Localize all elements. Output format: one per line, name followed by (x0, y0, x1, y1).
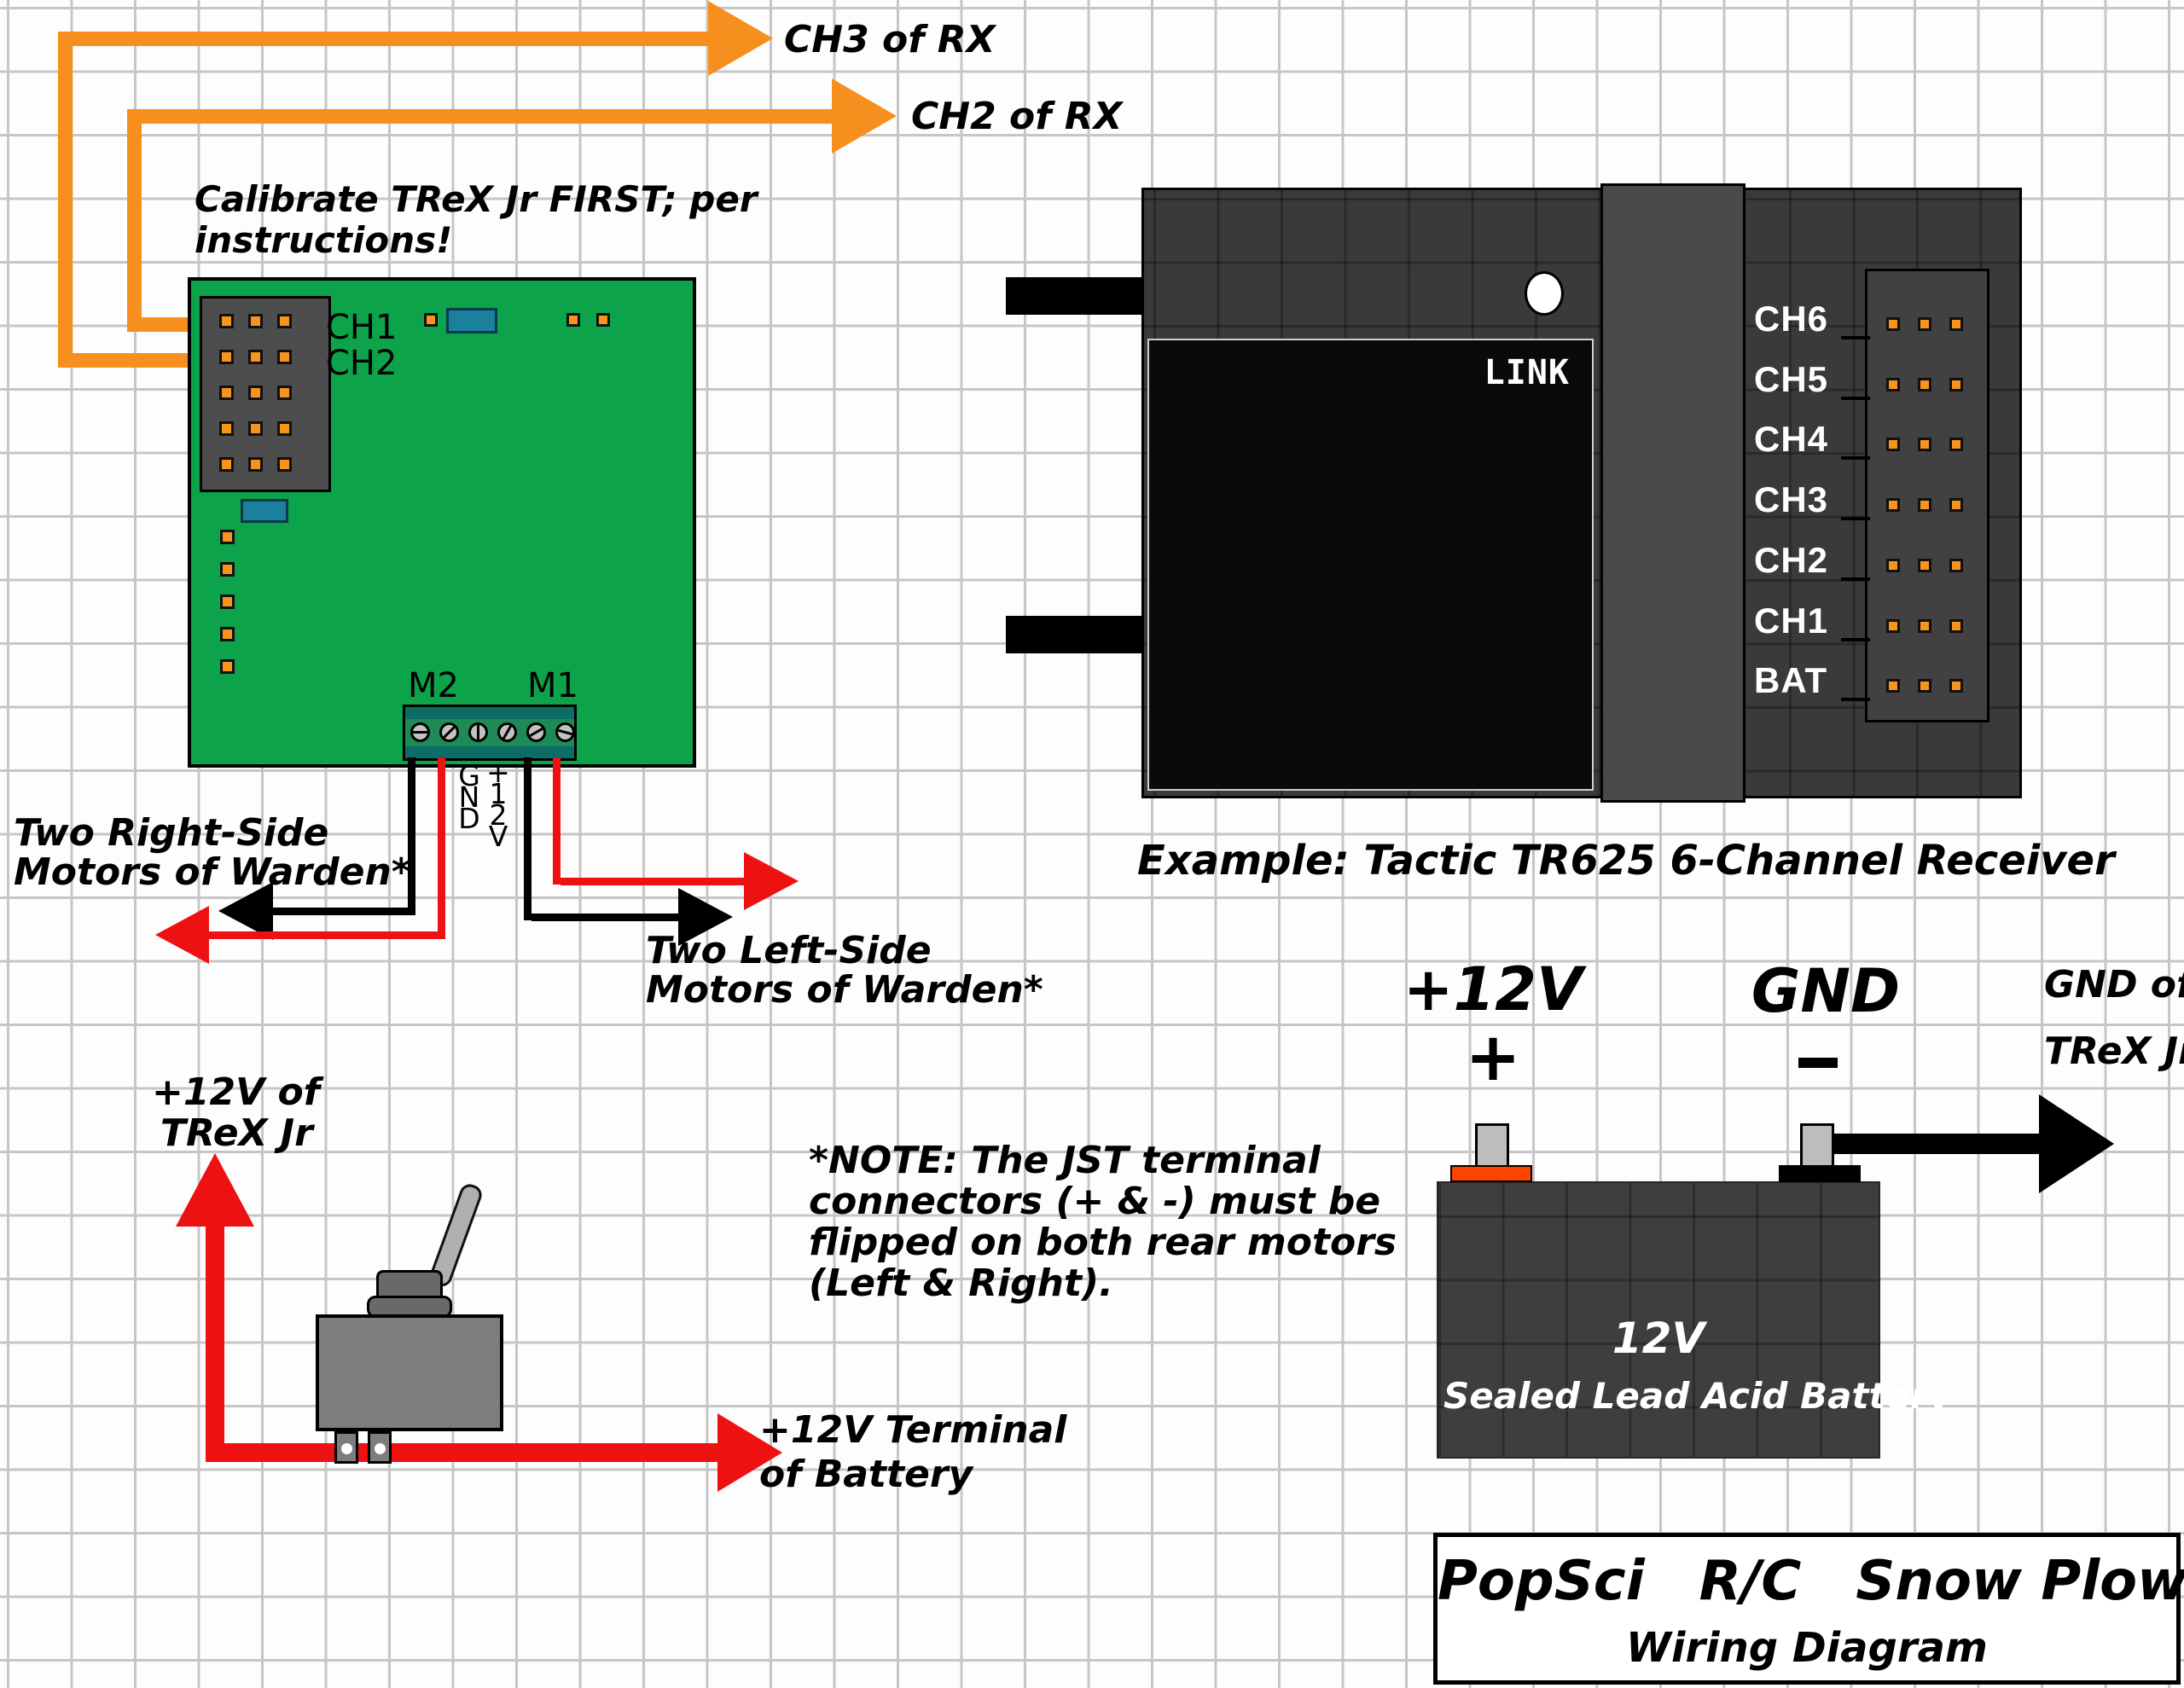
channel-step-line (1841, 577, 1870, 581)
m1-red-wire-v (553, 757, 561, 885)
receiver-channel-row: BAT (1754, 660, 2010, 708)
gnd-vertical-label: G N D (454, 765, 485, 829)
receiver-pin (1918, 317, 1931, 331)
receiver-pin (1886, 498, 1900, 512)
ch3-rx-label: CH3 of RX (784, 19, 996, 62)
battery-negative-pad (1779, 1165, 1861, 1182)
receiver-channel-row: CH3 (1754, 479, 2010, 527)
receiver-pin (1918, 378, 1931, 392)
board-ch1-label: CH1 (326, 308, 397, 347)
m1-black-wire-v (524, 757, 531, 920)
board-pin (220, 659, 235, 674)
receiver-pin (1886, 378, 1900, 392)
receiver-caption: Example: Tactic TR625 6-Channel Receiver (1137, 838, 2115, 885)
smd-component (241, 499, 288, 523)
smd-component (446, 308, 497, 334)
receiver-channel-row: CH6 (1754, 299, 2010, 346)
receiver-channel-row: CH4 (1754, 419, 2010, 467)
smd-pin (596, 313, 610, 327)
connector-pin (248, 314, 263, 328)
m2-red-wire-v (438, 757, 445, 938)
left-pin-column (220, 530, 235, 674)
battery-terminal-label-line2: of Battery (759, 1453, 973, 1497)
receiver-front-panel (1147, 339, 1594, 791)
receiver-divider-bar (1600, 183, 1745, 803)
screw-slot-icon (528, 727, 545, 738)
channel-step-line (1841, 456, 1870, 460)
terminal-screw (555, 722, 575, 742)
red-wire-vertical (206, 1225, 224, 1462)
terminal-screws (410, 722, 575, 742)
receiver-channel-row: CH2 (1754, 540, 2010, 588)
gnd-of-label-line1: GND of (2044, 964, 2184, 1007)
receiver-channel-label: CH3 (1754, 479, 1828, 520)
m2-red-wire-h (209, 931, 445, 939)
channel-pin-group (1886, 619, 1963, 633)
prong-hole-icon (341, 1443, 352, 1454)
connector-pin (219, 457, 234, 472)
trex-jr-board: CH1 CH2 M2 M1 (188, 277, 696, 768)
jst-note-line3: flipped on both rear motors (809, 1221, 1397, 1265)
board-pin (220, 595, 235, 609)
calibrate-note-line1: Calibrate TReX Jr FIRST; per (195, 179, 758, 220)
receiver-channel-label: CH5 (1754, 359, 1828, 400)
connector-pin (248, 457, 263, 472)
battery-gnd-label: GND (1732, 957, 1920, 1026)
channel-pin-group (1886, 679, 1963, 693)
receiver-channel-label: CH1 (1754, 600, 1828, 641)
channel-step-line (1841, 397, 1870, 400)
jst-note-line4: (Left & Right). (809, 1262, 1113, 1306)
receiver-pin (1949, 317, 1963, 331)
left-motors-label-line2: Motors of Warden* (646, 969, 1043, 1012)
gnd-letter: D (458, 808, 479, 829)
receiver-pin (1918, 438, 1931, 451)
rc-input-connector (200, 296, 331, 492)
board-ch2-label: CH2 (326, 344, 397, 383)
receiver-pin (1918, 559, 1931, 572)
wiring-diagram-canvas: CH3 of RX CH2 of RX Calibrate TReX Jr FI… (0, 0, 2184, 1688)
receiver-mount-tab (1006, 616, 1144, 653)
terminal-screw (468, 722, 488, 742)
switch-prong (368, 1431, 392, 1464)
m2-red-arrowhead-icon (155, 906, 209, 964)
ch2-wire-top (127, 109, 832, 124)
connector-pin (219, 350, 234, 364)
connector-pin (248, 350, 263, 364)
channel-pin-group (1886, 317, 1963, 331)
channel-pin-group (1886, 498, 1963, 512)
switch-prong (334, 1431, 358, 1464)
diagram-subtitle: Wiring Diagram (1438, 1624, 2176, 1672)
receiver-channel-row: CH5 (1754, 359, 2010, 407)
gnd-arrowhead-icon (2039, 1094, 2114, 1193)
right-motors-label-line1: Two Right-Side (14, 812, 328, 856)
gnd-of-label-line2: TReX Jr (2044, 1030, 2184, 1074)
connector-pin (277, 314, 292, 328)
connector-pin (277, 421, 292, 436)
channel-step-line (1841, 517, 1870, 520)
ch3-wire-vertical (58, 32, 73, 368)
calibrate-note-line2: instructions! (195, 220, 452, 261)
receiver-pin (1949, 679, 1963, 693)
receiver-pin (1886, 559, 1900, 572)
receiver-pin (1949, 498, 1963, 512)
left-motors-label-line1: Two Left-Side (646, 930, 932, 973)
ch2-rx-label: CH2 of RX (911, 96, 1123, 139)
gnd-wire-h (1833, 1134, 2039, 1154)
receiver-channels: CH6CH5CH4CH3CH2CH1BAT (1754, 299, 2010, 725)
link-led-icon (1525, 271, 1564, 316)
receiver-pin (1886, 619, 1900, 633)
terminal-screw (410, 722, 430, 742)
receiver-pin (1918, 679, 1931, 693)
terminal-screw (526, 722, 546, 742)
red-wire-horizontal (206, 1443, 717, 1462)
battery-minus-sign (1798, 1058, 1838, 1068)
channel-step-line (1841, 336, 1870, 339)
terminal-screw (439, 722, 459, 742)
receiver-pin (1886, 317, 1900, 331)
motor-terminal-block (403, 705, 577, 761)
receiver-pin (1949, 438, 1963, 451)
receiver-pin (1918, 619, 1931, 633)
screw-slot-icon (411, 731, 429, 734)
receiver-pin (1886, 438, 1900, 451)
connector-pin (248, 421, 263, 436)
red-up-arrowhead-icon (176, 1153, 254, 1227)
right-motors-label-line2: Motors of Warden* (14, 851, 411, 895)
connector-pin (219, 421, 234, 436)
m1-label: M1 (527, 666, 578, 705)
link-label: LINK (1416, 353, 1570, 392)
board-pin (220, 627, 235, 641)
smd-pin (424, 313, 438, 327)
receiver-pin (1886, 679, 1900, 693)
receiver-pin (1918, 498, 1931, 512)
battery-text-line2: Sealed Lead Acid Battery (1443, 1375, 1873, 1417)
plus12v-vertical-label: + 1 2 V (483, 762, 514, 847)
channel-pin-group (1886, 559, 1963, 572)
m1-black-wire-h (531, 914, 678, 921)
ch3-wire-stub (58, 353, 205, 368)
title-box: PopSci R/C Snow Plow Wiring Diagram (1433, 1533, 2181, 1685)
trex-12v-label-line1: +12V of (152, 1071, 320, 1115)
channel-pin-group (1886, 438, 1963, 451)
prong-hole-icon (375, 1443, 386, 1454)
m2-label: M2 (408, 666, 459, 705)
receiver-pin (1949, 619, 1963, 633)
channel-step-line (1841, 638, 1870, 641)
battery-plus12v-label: +12V (1399, 955, 1587, 1024)
receiver-channel-label: CH6 (1754, 299, 1828, 339)
battery-plus-sign: + (1450, 1020, 1536, 1097)
screw-slot-icon (477, 723, 479, 741)
screw-slot-icon (442, 725, 456, 740)
receiver-channel-label: CH2 (1754, 540, 1828, 581)
connector-pin (248, 386, 263, 400)
v12-letter: V (489, 826, 508, 847)
receiver-pin (1949, 559, 1963, 572)
receiver-mount-tab (1006, 277, 1144, 315)
smd-pin (566, 313, 580, 327)
screw-slot-icon (502, 724, 513, 741)
ch2-wire-vertical (127, 109, 142, 332)
connector-pin (277, 350, 292, 364)
connector-pin (277, 386, 292, 400)
receiver-channel-label: BAT (1754, 660, 1827, 701)
connector-pin-grid (219, 314, 292, 472)
jst-note-line1: *NOTE: The JST terminal (809, 1140, 1321, 1183)
board-pin (220, 530, 235, 544)
battery-text-line1: 12V (1488, 1314, 1829, 1363)
connector-pin (277, 457, 292, 472)
connector-pin (219, 386, 234, 400)
ch3-wire-top (58, 32, 708, 46)
ch3-arrowhead-icon (708, 1, 773, 76)
diagram-title: PopSci R/C Snow Plow (1438, 1550, 2176, 1613)
jst-note-line2: connectors (+ & -) must be (809, 1180, 1380, 1224)
screw-slot-icon (556, 728, 574, 735)
connector-pin (219, 314, 234, 328)
receiver-pin (1949, 378, 1963, 392)
toggle-switch-body (316, 1314, 503, 1431)
receiver-channel-label: CH4 (1754, 419, 1828, 460)
receiver-channel-row: CH1 (1754, 600, 2010, 648)
board-pin (220, 562, 235, 577)
ch2-arrowhead-icon (832, 78, 897, 154)
battery-positive-pad (1450, 1165, 1532, 1182)
terminal-screw (497, 722, 517, 742)
m1-red-wire-h (561, 878, 744, 885)
trex-12v-label-line2: TReX Jr (160, 1112, 313, 1156)
channel-pin-group (1886, 378, 1963, 392)
battery-terminal-label-line1: +12V Terminal (759, 1409, 1066, 1453)
m1-red-arrowhead-icon (744, 852, 799, 910)
m2-black-wire-h (273, 908, 415, 915)
channel-step-line (1841, 698, 1870, 701)
